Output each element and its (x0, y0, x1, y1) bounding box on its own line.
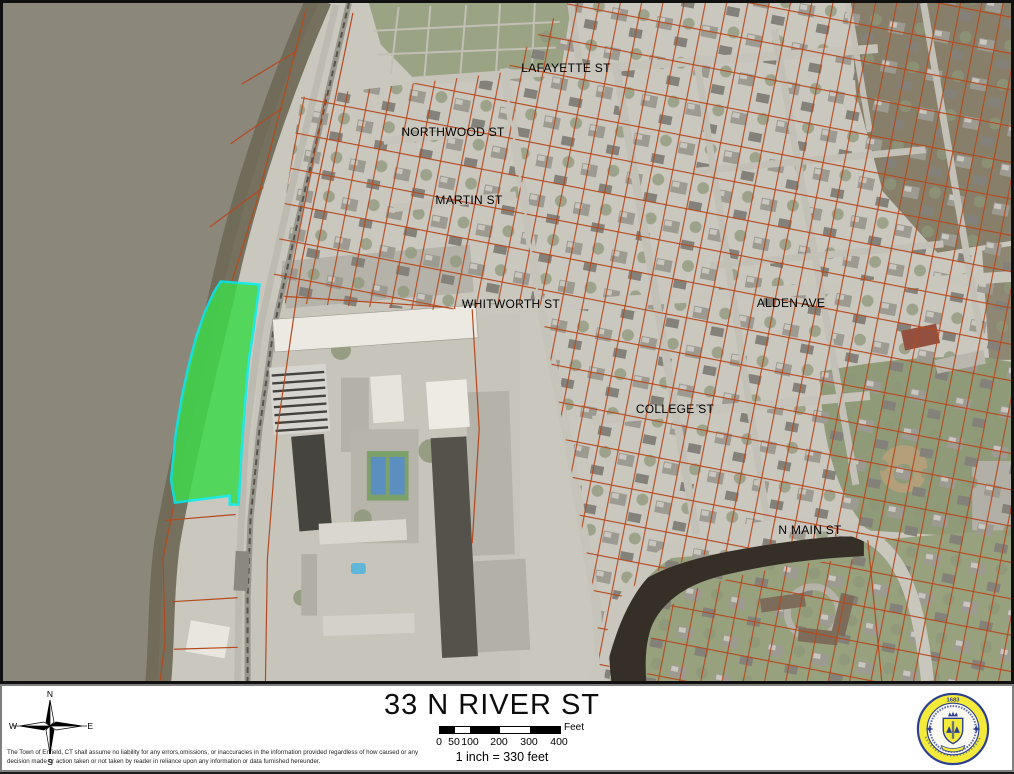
scale-bar (439, 726, 561, 734)
town-seal-icon: 1683 (914, 690, 992, 768)
scale-tick-label: 50 (448, 736, 460, 748)
scale-segment (530, 727, 560, 733)
seal-year: 1683 (946, 698, 960, 704)
map-viewport[interactable]: LAFAYETTE ST NORTHWOOD ST MARTIN ST WHIT… (0, 0, 1014, 684)
disclaimer-text: The Town of Enfield, CT shall assume no … (7, 749, 567, 767)
disclaimer-line-1: The Town of Enfield, CT shall assume no … (7, 749, 567, 758)
parking-lot (468, 559, 530, 653)
scale-segment (440, 727, 455, 733)
disclaimer-line-2: decision made or action taken or not tak… (7, 758, 567, 767)
scale-segment (470, 727, 500, 733)
compass-n-label: N (47, 689, 53, 699)
tennis-courts (367, 451, 409, 501)
compass-w-label: W (9, 721, 17, 731)
map-document: LAFAYETTE ST NORTHWOOD ST MARTIN ST WHIT… (0, 0, 1014, 774)
scale-segment (455, 727, 470, 733)
swimming-pool (351, 563, 366, 574)
scale-tick-label: 400 (550, 736, 568, 748)
map-title: 33 N RIVER ST (342, 689, 642, 722)
scale-tick-label: 300 (520, 736, 538, 748)
scale-tick-label: 200 (490, 736, 508, 748)
map-footer: N S W E 33 N RIVER ST Feet 0 50 100 200 … (0, 684, 1014, 772)
parcel-grid-west (269, 72, 537, 310)
scale-tick-label: 100 (461, 736, 479, 748)
scale-unit-label: Feet (564, 722, 584, 733)
aerial-imagery (3, 3, 1011, 681)
scale-tick-label: 0 (436, 736, 442, 748)
compass-e-label: E (87, 721, 93, 731)
scale-tick-labels: 0 50 100 200 300 400 (439, 736, 559, 748)
scale-segment (500, 727, 530, 733)
